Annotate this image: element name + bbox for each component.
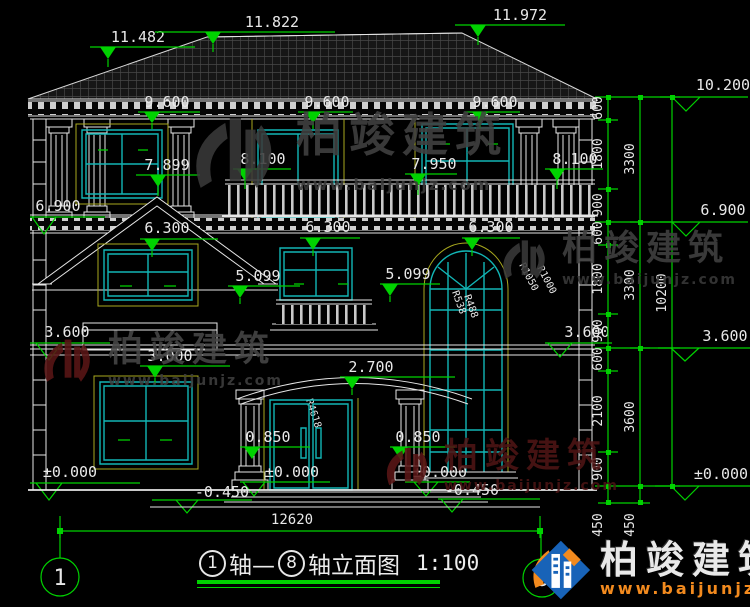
title-axis-start: 1	[199, 550, 226, 577]
dim-col1-2: 900	[591, 193, 606, 216]
brand-logo-block: 柏竣建筑 www.baijunjz.com	[526, 537, 750, 603]
title-underline-thick	[197, 580, 440, 584]
elevation-drawing: 11.482 11.822 11.972	[0, 0, 750, 607]
dim-col2-0: 3300	[623, 143, 638, 174]
level-9600-left: 9.600	[144, 93, 189, 111]
dim-col1-4: 1800	[591, 263, 606, 294]
title-axis-end: 8	[278, 550, 305, 577]
level-7950: 7.950	[411, 155, 456, 173]
dim-col1-8: 900	[591, 457, 606, 480]
cad-elevation-screenshot: 11.482 11.822 11.972	[0, 0, 750, 607]
middle-floor: R1050 R1000 R538 R488 6.300 6.300 6.300 …	[32, 197, 592, 478]
level-0850-right: 0.850	[395, 428, 440, 446]
level-0000-far-right: ±0.000	[694, 465, 748, 483]
level-6300-arch: 6.300	[468, 218, 513, 236]
level-2700: 2.700	[348, 358, 393, 376]
drawing-title: 1 轴— 8 轴立面图 1:100	[196, 546, 479, 580]
level-6900-right: 6.900	[700, 201, 745, 219]
dim-col1-9: 450	[591, 513, 606, 536]
level-7899: 7.899	[144, 156, 189, 174]
title-joiner: 轴—	[229, 546, 275, 580]
dim-col1-1: 1800	[591, 138, 606, 169]
balcony-balustrade	[222, 180, 598, 216]
level-3600-far-right: 3.600	[702, 327, 747, 345]
level-11482: 11.482	[111, 28, 165, 46]
brand-logo-url: www.baijunjz.com	[600, 579, 750, 600]
dim-col2-3: 450	[623, 513, 638, 536]
dim-col1-0: 600	[591, 96, 606, 119]
level-11822: 11.822	[245, 13, 299, 31]
entablature-band	[83, 323, 217, 350]
window-3f-center	[280, 248, 352, 300]
level-6300-left: 6.300	[144, 219, 189, 237]
dim-col1-3: 600	[591, 221, 606, 244]
title-scale: 1:100	[416, 551, 479, 575]
brand-logo-text: 柏竣建筑	[600, 541, 750, 579]
level-9600-right: 9.600	[472, 93, 517, 111]
level-0000-left: ±0.000	[43, 463, 97, 481]
second-floor: 9.600 9.600 9.600 7.899 7.950 8.100 8.10…	[33, 93, 603, 490]
level-0850-left: 0.850	[245, 428, 290, 446]
radius-r1000: R1000	[534, 264, 558, 296]
level-8100-left: 8.100	[240, 150, 285, 168]
level-m0450-left: -0.450	[195, 483, 249, 501]
mini-balcony	[270, 300, 378, 330]
level-5099-left: 5.099	[235, 267, 280, 285]
level-6900-left: 6.900	[35, 197, 80, 215]
dim-col1-5: 900	[591, 319, 606, 342]
dim-col1-6: 600	[591, 347, 606, 370]
dim-total-width: 12620	[271, 512, 313, 528]
level-0000-center: ±0.000	[265, 463, 319, 481]
dim-col2-1: 3300	[623, 269, 638, 300]
level-3600-left: 3.600	[44, 323, 89, 341]
window-1f-left	[94, 376, 198, 469]
radius-r1050: R1050	[516, 261, 540, 293]
level-3000: 3.000	[147, 347, 192, 365]
brand-logo-icon	[526, 537, 592, 603]
level-11972: 11.972	[493, 6, 547, 24]
dimension-chains: 600 1800 900 600 1800 900 600 2100 900 4…	[591, 76, 750, 537]
level-6300-center: 6.300	[305, 218, 350, 236]
dim-col1-7: 2100	[591, 395, 606, 426]
title-underline-thin	[197, 587, 440, 588]
title-suffix: 轴立面图	[308, 546, 400, 580]
dim-col2-2: 3600	[623, 401, 638, 432]
level-5099-center: 5.099	[385, 265, 430, 283]
level-9600-center: 9.600	[304, 93, 349, 111]
level-10200-right: 10.200	[696, 76, 750, 94]
axis-bubble-1: 1	[53, 566, 66, 591]
level-0000-right: ±0.000	[413, 463, 467, 481]
dim-col3-0: 10200	[655, 273, 670, 312]
